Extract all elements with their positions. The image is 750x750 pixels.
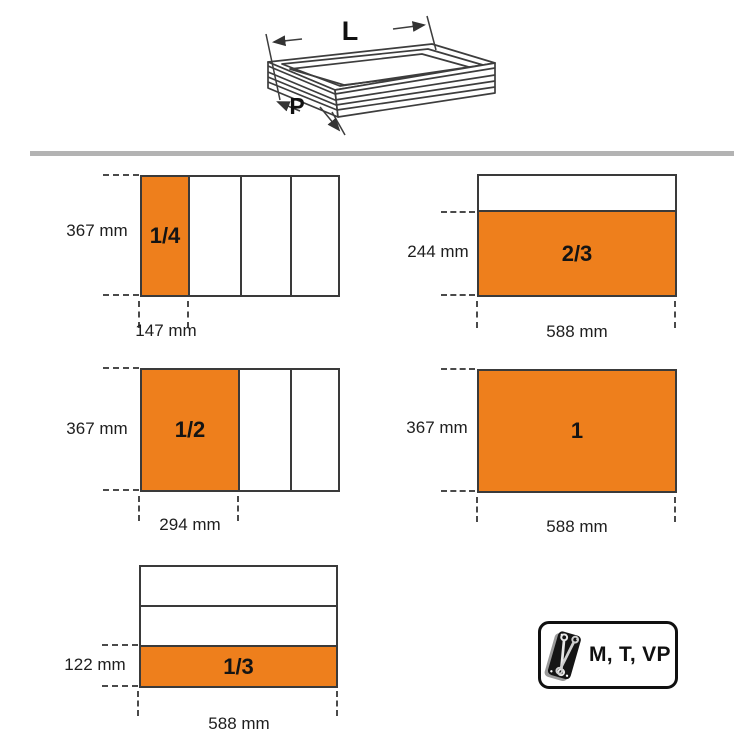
column-divider [290,177,292,295]
badge-label: M, T, VP [589,643,671,667]
height-dimension: 367 mm [406,418,467,438]
drawer-1-2-outline: 1/2 [140,368,340,492]
extension-line [441,294,475,296]
drawer-size-catalog-page: L P 1/4 367 mm 147 mm 2/3 244 mm 588 mm … [0,0,750,750]
extension-line [103,174,139,176]
extension-line [441,211,475,213]
extension-line [674,497,676,522]
extension-line [103,367,139,369]
extension-line [674,301,676,328]
extension-line [137,691,139,716]
extension-line [102,644,138,646]
width-dimension: 588 mm [208,714,269,734]
drawer-isometric-icon: L P [250,8,510,146]
fraction-label: 1/3 [223,654,254,680]
drawer-1-3-outline: 1/3 [139,565,338,688]
drawer-2-3-highlight: 2/3 [479,210,675,295]
drawer-1-3-highlight: 1/3 [141,645,336,686]
drawer-2-3-outline: 2/3 [477,174,677,297]
drawer-1-4-outline: 1/4 [140,175,340,297]
extension-line [441,368,475,370]
height-dimension: 367 mm [66,221,127,241]
fraction-label: 1 [571,418,583,444]
height-dimension: 367 mm [66,419,127,439]
extension-line [103,489,139,491]
extension-line [102,685,138,687]
fraction-label: 1/2 [175,417,206,443]
height-dimension: 122 mm [64,655,125,675]
extension-line [103,294,139,296]
height-dimension: 244 mm [407,242,468,262]
depth-dimension-label: P [289,93,304,119]
column-divider [290,370,292,490]
extension-line [476,301,478,328]
length-dimension-label: L [342,16,359,46]
extension-line [336,691,338,716]
width-dimension: 294 mm [159,515,220,535]
drawer-1-highlight: 1 [479,371,675,491]
width-dimension: 147 mm [135,321,196,341]
column-divider [240,177,242,295]
drawer-1-2-highlight: 1/2 [142,370,240,490]
drawer-1-4-highlight: 1/4 [142,177,190,295]
width-dimension: 588 mm [546,517,607,537]
wrench-tray-icon [544,627,588,683]
extension-line [138,496,140,521]
extension-line [441,490,475,492]
section-divider [30,151,734,156]
extension-line [476,497,478,522]
tool-module-badge: M, T, VP [538,621,678,689]
fraction-label: 2/3 [562,241,593,267]
extension-line [237,496,239,521]
drawer-1-outline: 1 [477,369,677,493]
fraction-label: 1/4 [150,223,181,249]
width-dimension: 588 mm [546,322,607,342]
row-divider [141,605,336,607]
